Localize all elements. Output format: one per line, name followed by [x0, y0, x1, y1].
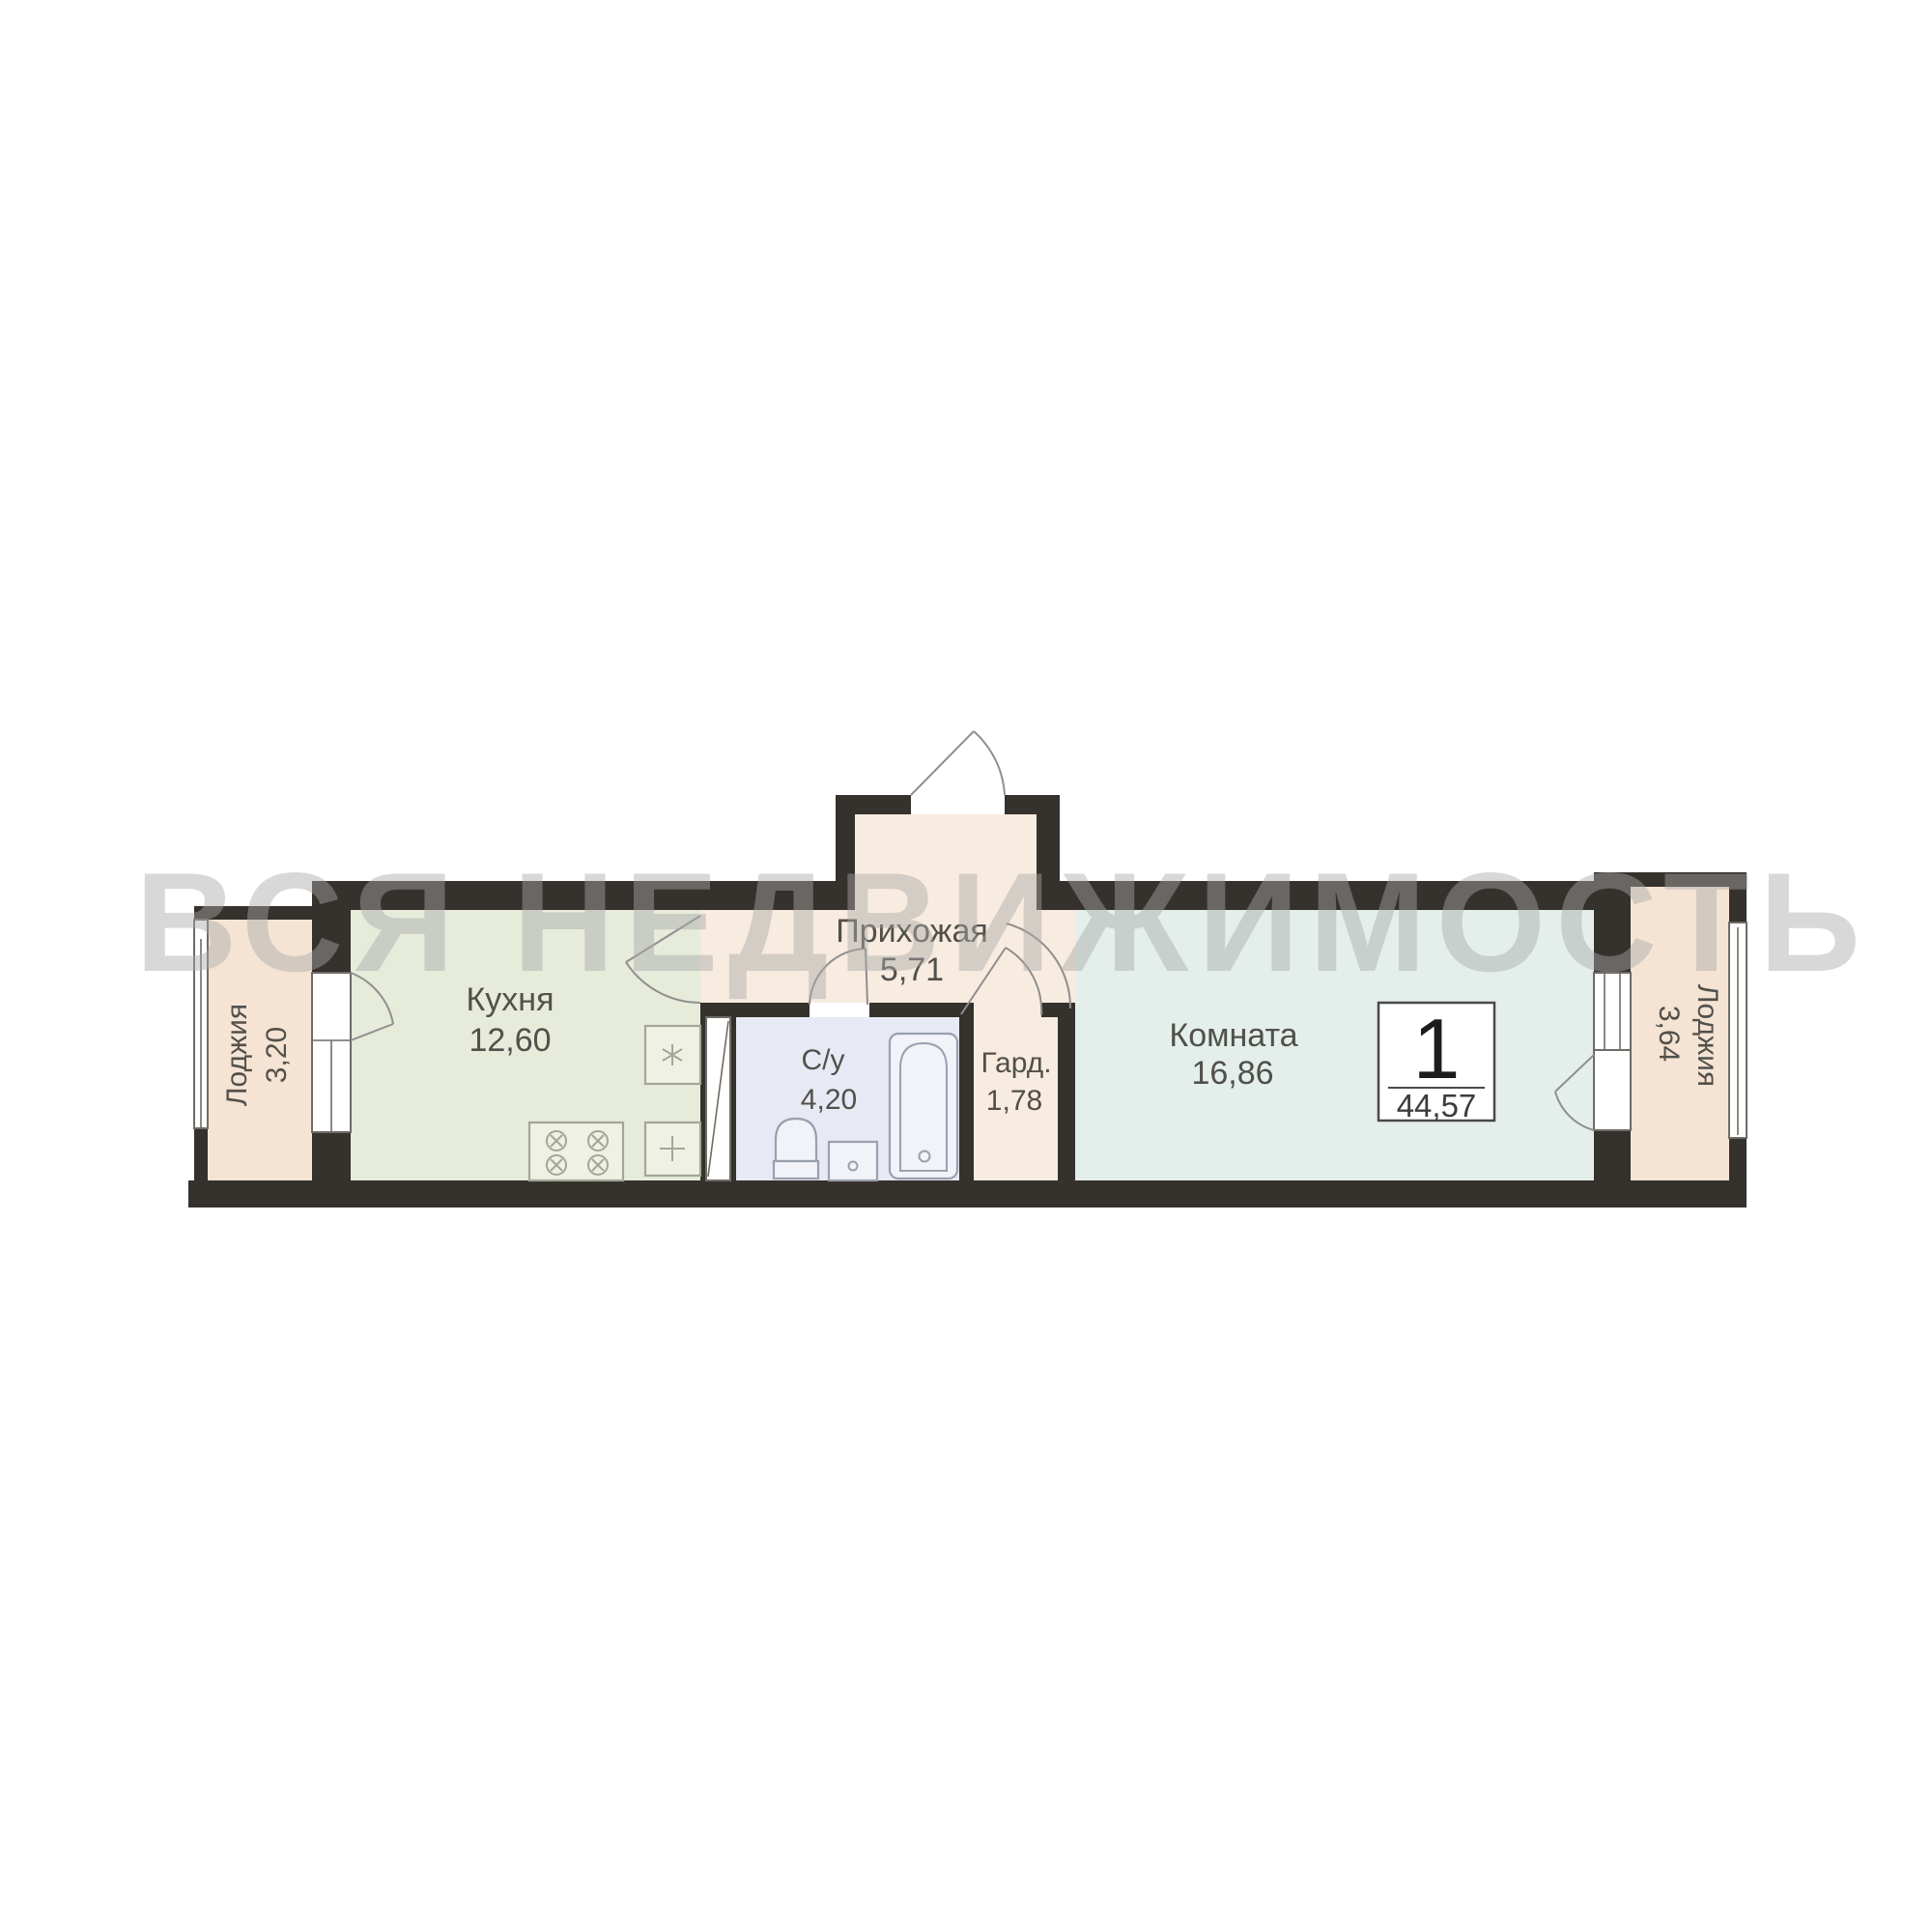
bathtub — [890, 1034, 957, 1179]
kitchen-counter — [645, 1122, 700, 1176]
wardrobe-area: 1,78 — [986, 1085, 1042, 1117]
kitchen-area: 12,60 — [469, 1022, 551, 1059]
bathroom-area: 4,20 — [801, 1084, 857, 1116]
wall-segment — [836, 795, 911, 814]
unit-badge-area: 44,57 — [1397, 1088, 1477, 1123]
wall-segment — [312, 1132, 351, 1180]
floorplan-page: Лоджия 3,20 Кухня 12,60 Прихожая 5,71 С/… — [0, 0, 1932, 1932]
wall-segment — [1594, 1130, 1631, 1180]
washing-machine — [829, 1142, 877, 1180]
toilet — [774, 1119, 818, 1179]
entrance-door-arc — [974, 731, 1005, 795]
wall-segment — [959, 1003, 974, 1180]
sink — [645, 1026, 700, 1084]
room-balcony-door-panel — [1594, 1050, 1631, 1130]
watermark: ВСЯ НЕДВИЖИМОСТЬ — [135, 843, 1870, 1001]
wardrobe-label: Гард. — [980, 1047, 1051, 1079]
unit-badge: 1 44,57 — [1378, 1001, 1494, 1123]
loggia-left-label: Лоджия — [221, 1004, 253, 1106]
floorplan-canvas: Лоджия 3,20 Кухня 12,60 Прихожая 5,71 С/… — [0, 0, 1932, 1932]
living-room-label: Комната — [1169, 1017, 1297, 1054]
unit-badge-rooms: 1 — [1413, 1001, 1461, 1096]
loggia-right-area: 3,64 — [1653, 1006, 1685, 1062]
wall-segment — [700, 1003, 810, 1017]
entrance-door-leaf — [911, 731, 974, 795]
loggia-left-area: 3,20 — [261, 1027, 293, 1083]
wall-segment — [1058, 1003, 1075, 1180]
wall-segment — [1041, 1003, 1058, 1017]
bathroom-label: С/у — [802, 1044, 845, 1076]
wall-segment — [194, 1128, 208, 1180]
wall-segment — [1729, 1138, 1747, 1180]
living-room-area: 16,86 — [1191, 1055, 1273, 1092]
wardrobe-door-gap — [974, 1003, 1041, 1017]
wall-segment — [869, 1003, 974, 1017]
wall-segment — [1005, 795, 1060, 814]
stove — [529, 1122, 623, 1180]
wall-segment — [188, 1180, 1747, 1207]
